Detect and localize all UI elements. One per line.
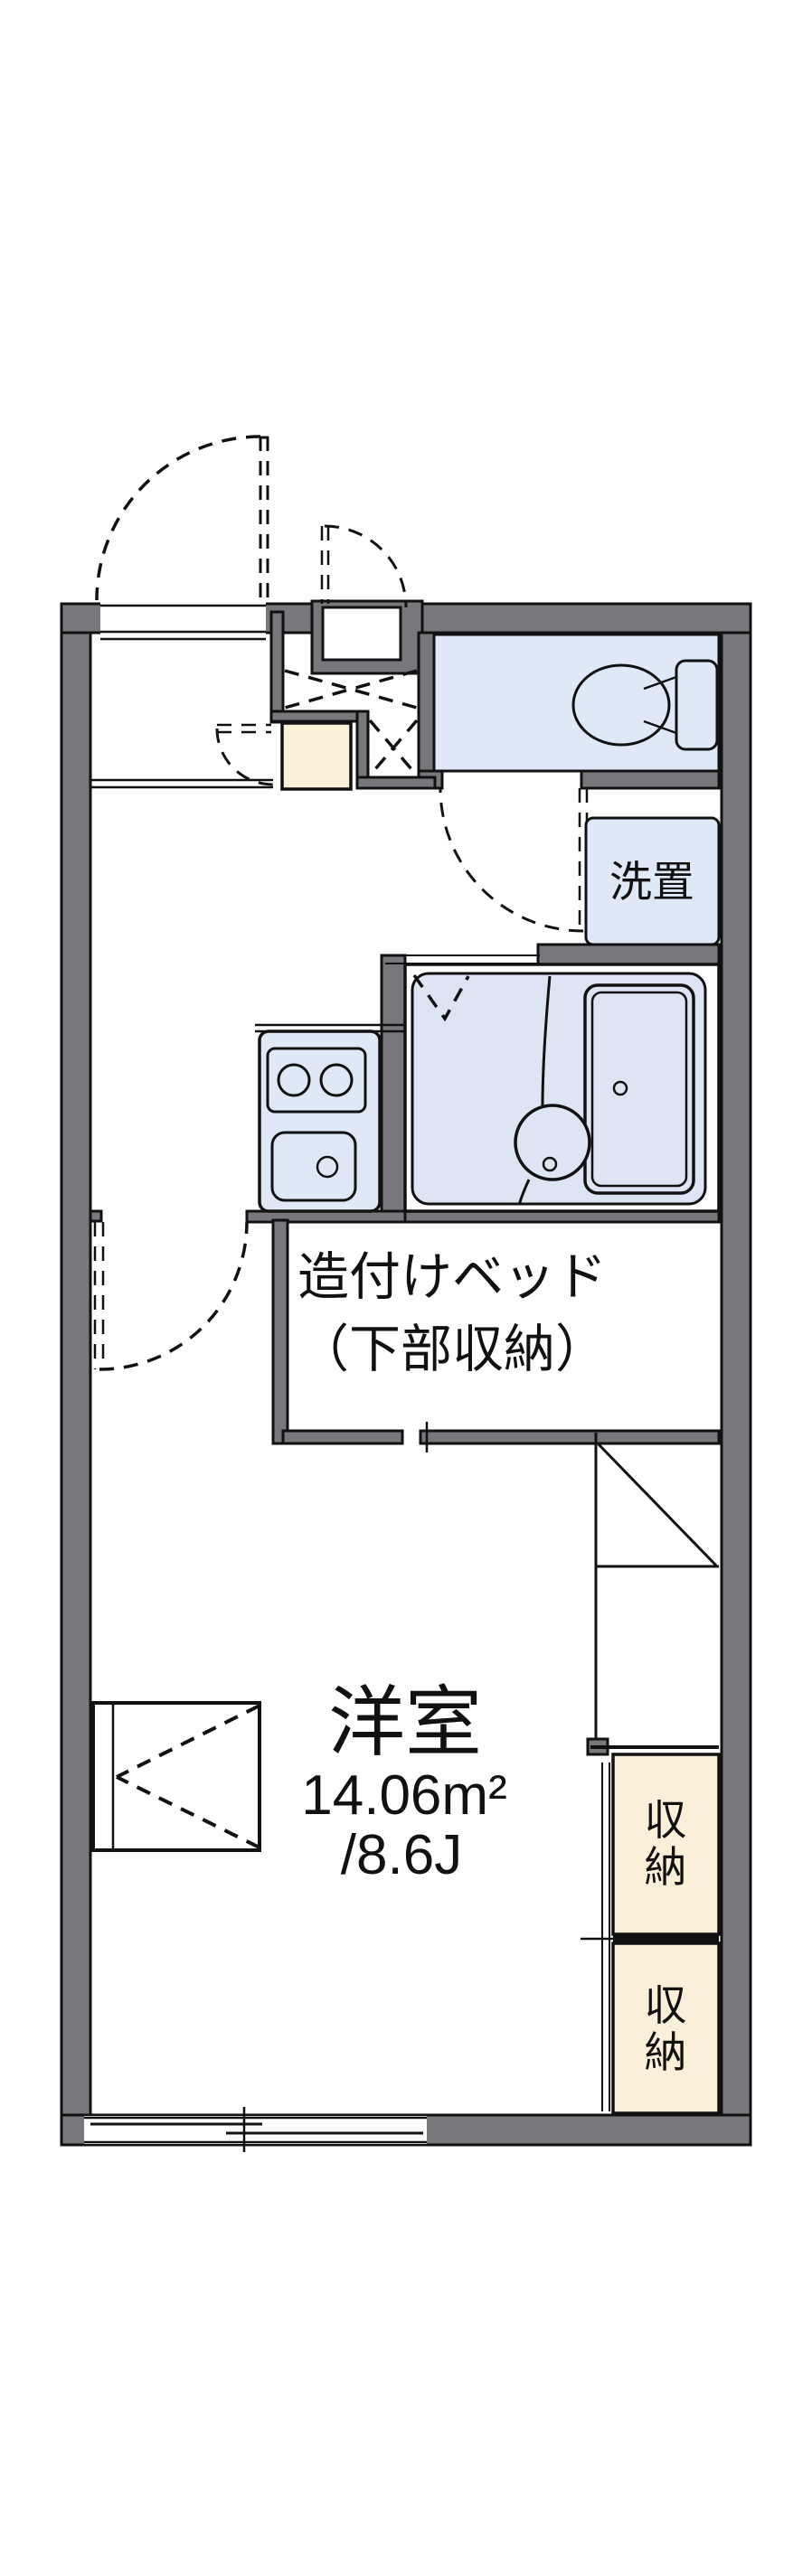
wall-toilet-left — [419, 633, 434, 784]
wash-basin — [515, 1105, 590, 1180]
wall-room-divider — [90, 1211, 101, 1221]
wall-pipe-space — [271, 711, 368, 721]
floor-plan-drawing: 洗置 造付けベッド （下部収納） — [0, 0, 812, 2576]
entrance — [97, 437, 269, 641]
shoe-cabinet — [282, 723, 351, 789]
closet-diagonal — [599, 1444, 716, 1565]
main-room-door-swing-arc — [99, 1222, 247, 1369]
laundry-space: 洗置 — [586, 818, 719, 945]
bed-label-line2: （下部収納） — [297, 1321, 607, 1378]
storage-lower-label: 収納 — [645, 1981, 687, 2076]
bed-label-line1: 造付けベッド — [297, 1248, 607, 1306]
wall-bath-bottom — [382, 1211, 719, 1222]
room-name-label: 洋室 — [328, 1680, 482, 1766]
window-box — [93, 1703, 260, 1850]
wall-bed-bottom — [420, 1431, 719, 1443]
wall-left — [61, 604, 90, 2145]
wall-room-divider — [247, 1211, 405, 1222]
bathtub — [585, 985, 694, 1193]
room-area-tatami: /8.6J — [341, 1824, 462, 1886]
meter-box — [312, 526, 422, 673]
kitchen-sink — [272, 1133, 355, 1200]
wall-toilet-bottom — [581, 771, 719, 788]
storage-closets: 収納 収納 — [581, 1433, 719, 2113]
wall-bath-left — [382, 955, 405, 1213]
room-area-sqm: 14.06m² — [301, 1764, 506, 1827]
wall-bed-left — [273, 1220, 288, 1443]
wall-right — [722, 604, 751, 2145]
bathroom — [385, 955, 719, 1211]
toilet-door-swing-arc — [440, 788, 583, 931]
main-room: 洋室 14.06m² /8.6J — [301, 1680, 506, 1886]
sink-drain — [317, 1157, 337, 1177]
pipe-space-x-line — [285, 671, 417, 708]
wall-pipe-space-left — [271, 612, 283, 722]
meter-box-door-swing-arc — [325, 526, 406, 607]
hall-door-swing-arc — [217, 729, 273, 785]
pipe-space-x-line — [285, 671, 417, 708]
toilet-tank — [676, 661, 717, 749]
wall-bed-bottom — [283, 1431, 402, 1443]
storage-divider — [613, 1935, 719, 1942]
storage-upper-label: 収納 — [645, 1796, 687, 1891]
main-room-door — [95, 1222, 247, 1369]
wall-pipe-space — [357, 777, 435, 788]
floor-plan-page: 洗置 造付けベッド （下部収納） — [0, 0, 812, 2576]
toilet-bowl — [573, 665, 669, 745]
hallway — [90, 723, 351, 789]
laundry-label: 洗置 — [609, 858, 694, 906]
built-in-bed: 造付けベッド （下部収納） — [297, 1248, 607, 1378]
wall-bath-top — [538, 945, 719, 964]
entrance-door-swing-arc — [97, 437, 260, 600]
stove-burner — [321, 1065, 352, 1095]
stove-burner — [279, 1065, 309, 1095]
sliding-window-opening — [84, 2116, 427, 2144]
meter-box-niche — [323, 607, 401, 660]
